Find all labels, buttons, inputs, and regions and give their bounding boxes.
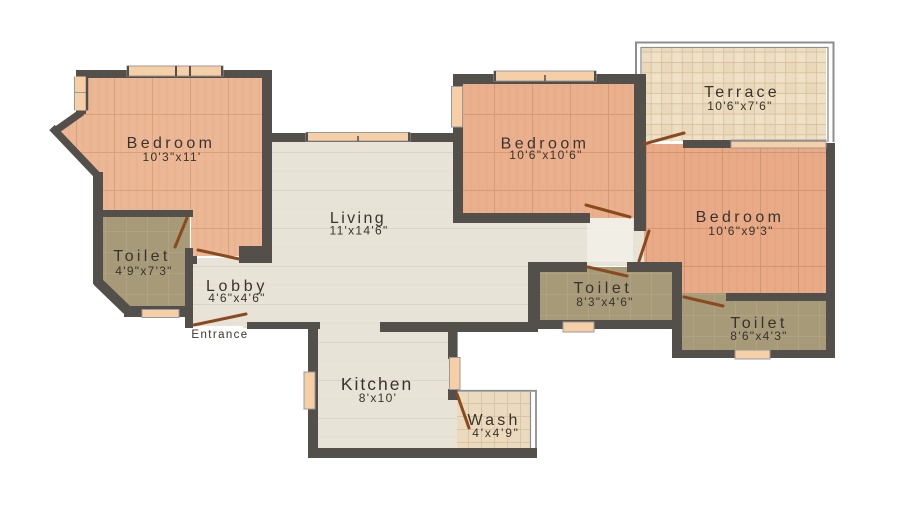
svg-text:10'3"x11': 10'3"x11'	[142, 150, 201, 164]
svg-text:10'6"x7'6": 10'6"x7'6"	[707, 99, 772, 113]
svg-text:10'6"x10'6": 10'6"x10'6"	[509, 148, 582, 162]
svg-text:8'x10': 8'x10'	[359, 391, 397, 405]
svg-text:10'6"x9'3": 10'6"x9'3"	[708, 224, 773, 238]
svg-text:8'3"x4'6": 8'3"x4'6"	[576, 295, 634, 309]
svg-text:4'9"x7'3": 4'9"x7'3"	[115, 264, 173, 278]
svg-text:4'x4'9": 4'x4'9"	[472, 426, 519, 440]
svg-text:Toilet: Toilet	[113, 248, 170, 265]
svg-text:4'6"x4'6": 4'6"x4'6"	[208, 291, 266, 305]
svg-text:8'6"x4'3": 8'6"x4'3"	[730, 329, 788, 343]
svg-text:11'x14'6": 11'x14'6"	[329, 224, 388, 238]
svg-text:Entrance: Entrance	[191, 329, 248, 341]
